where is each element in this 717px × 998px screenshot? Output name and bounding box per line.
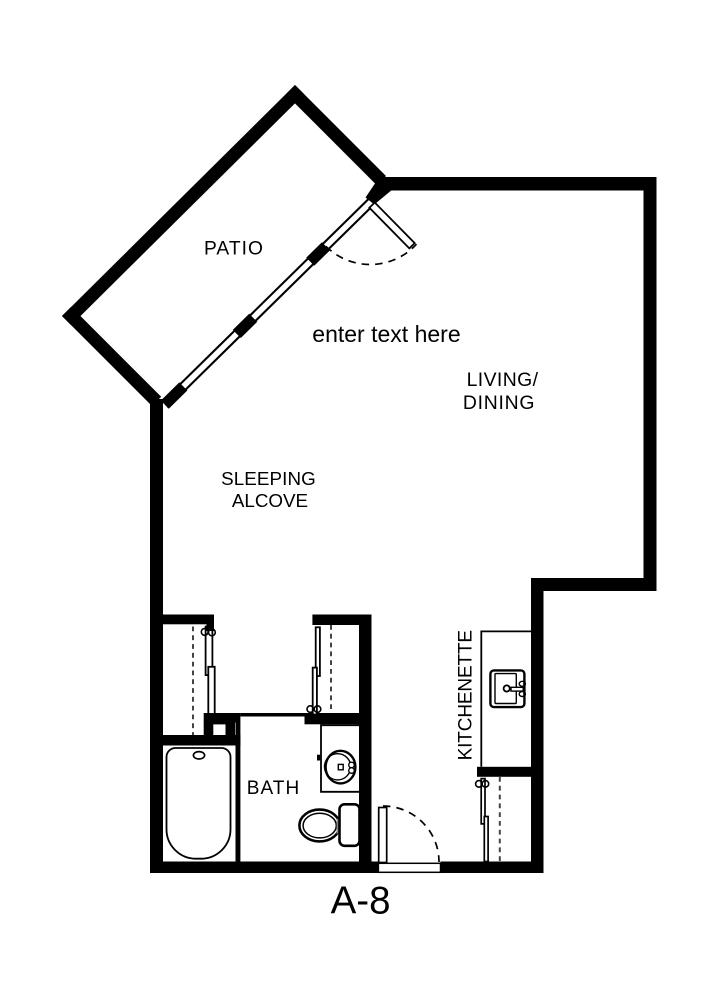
svg-text:PATIO: PATIO xyxy=(204,238,264,259)
svg-text:LIVING/: LIVING/ xyxy=(467,369,539,391)
svg-text:A-8: A-8 xyxy=(331,880,391,923)
svg-text:KITCHENETTE: KITCHENETTE xyxy=(455,630,476,760)
svg-text:DINING: DINING xyxy=(463,392,535,414)
svg-text:enter text here: enter text here xyxy=(312,321,460,347)
svg-text:BATH: BATH xyxy=(247,778,300,799)
svg-text:SLEEPING: SLEEPING xyxy=(221,468,316,489)
svg-text:ALCOVE: ALCOVE xyxy=(232,490,308,511)
